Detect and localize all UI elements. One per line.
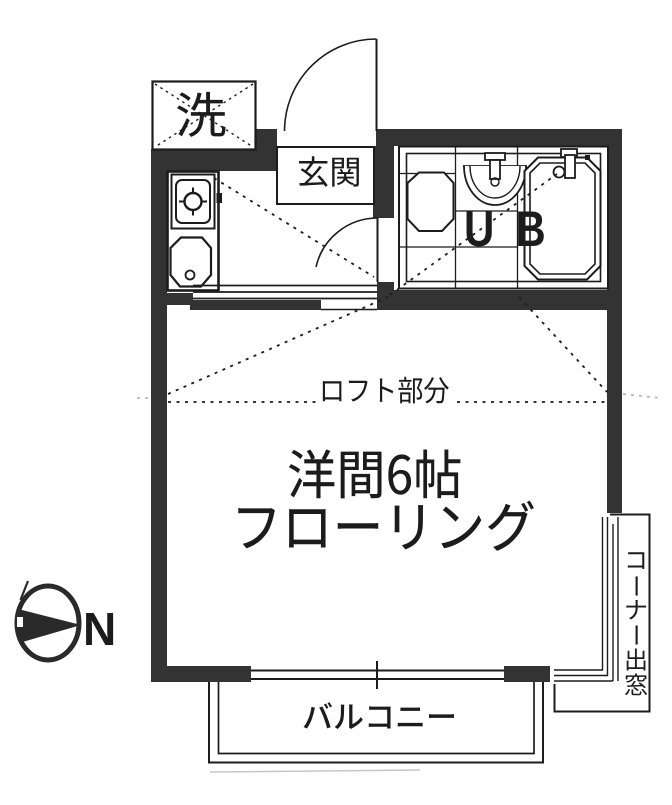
svg-text:N: N bbox=[83, 603, 116, 655]
svg-text:UB: UB bbox=[464, 201, 567, 257]
